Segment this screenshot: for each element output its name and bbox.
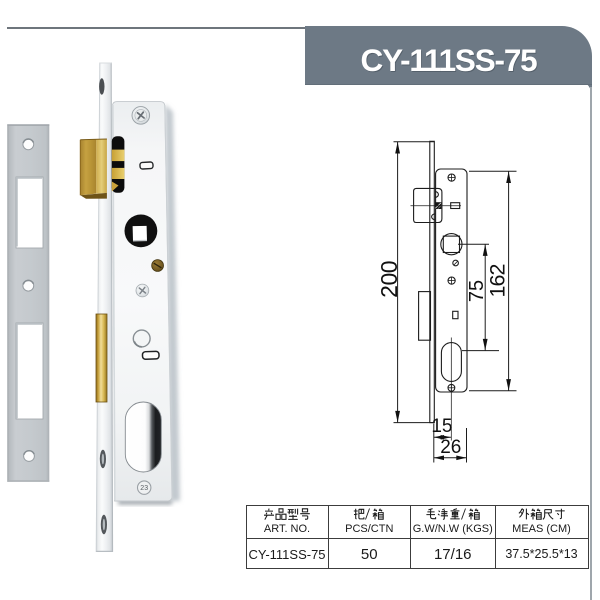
svg-text:75: 75: [466, 280, 488, 302]
svg-text:15: 15: [431, 416, 452, 437]
svg-text:200: 200: [376, 261, 402, 298]
svg-text:23: 23: [140, 485, 148, 492]
svg-text:26: 26: [440, 437, 461, 458]
svg-text:162: 162: [486, 265, 510, 298]
